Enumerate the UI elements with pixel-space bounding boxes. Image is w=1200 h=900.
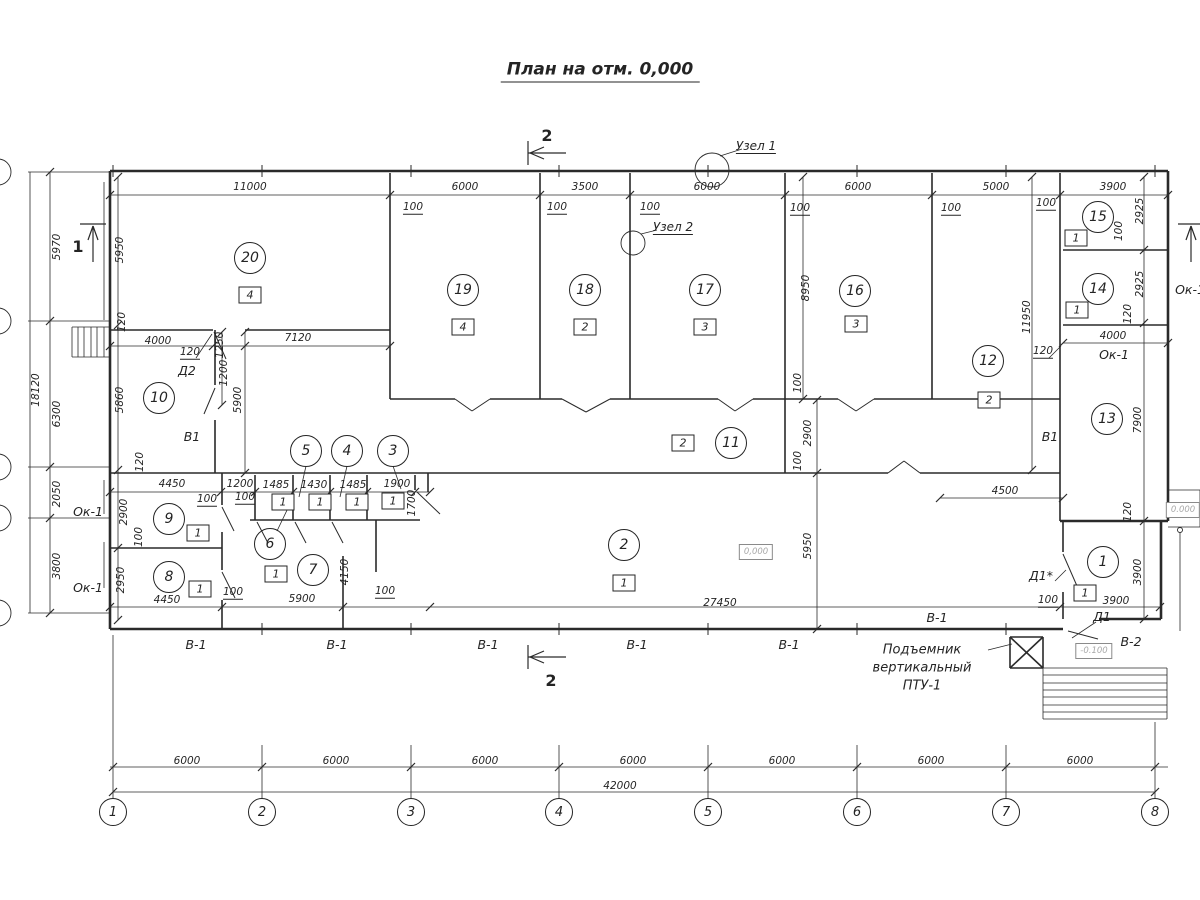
fixture-category-box: 1 bbox=[382, 493, 405, 510]
dim-label: 100 bbox=[235, 492, 255, 505]
opening-type-label: В-1 bbox=[185, 639, 206, 652]
fixture-category-box: 1 bbox=[272, 494, 295, 511]
opening-type-label: В-1 bbox=[778, 639, 799, 652]
dim-label: 100 bbox=[1038, 595, 1058, 608]
grid-spacing-dim: 6000 bbox=[620, 756, 647, 767]
elevation-mark: -0.100 bbox=[1075, 643, 1112, 659]
room-category-box: 1 bbox=[1065, 230, 1088, 247]
dim-label: 6000 bbox=[845, 182, 872, 193]
dim-label: 2900 bbox=[803, 420, 814, 447]
detail-node-label: Узел 2 bbox=[653, 221, 693, 235]
dim-label: 5000 bbox=[983, 182, 1010, 193]
grid-bubble-5: 5 bbox=[694, 798, 722, 826]
opening-type-label: В-1 bbox=[626, 639, 647, 652]
room-number-12: 12 bbox=[972, 345, 1004, 377]
opening-type-label: Д1 bbox=[1093, 611, 1111, 624]
room-category-box: 1 bbox=[187, 525, 210, 542]
equipment-note-line: ПТУ-1 bbox=[903, 680, 942, 693]
room-number-18: 18 bbox=[569, 274, 601, 306]
dim-label: 120 bbox=[1123, 304, 1134, 324]
room-number-7: 7 bbox=[297, 554, 329, 586]
dim-label: 2900 bbox=[119, 499, 130, 526]
dimension-lines bbox=[28, 172, 1200, 799]
dim-label: 1900 bbox=[384, 479, 411, 490]
detail-node-label: Узел 1 bbox=[736, 140, 776, 154]
opening-type-label: В-1 bbox=[926, 612, 947, 625]
dim-label: 100 bbox=[790, 203, 810, 216]
grid-total-dim: 42000 bbox=[603, 781, 636, 792]
dim-label: 5900 bbox=[289, 594, 316, 605]
door-symbols bbox=[204, 332, 1098, 639]
dim-label: 6300 bbox=[52, 401, 63, 428]
dim-label: 2925 bbox=[1135, 271, 1146, 298]
room-number-16: 16 bbox=[839, 275, 871, 307]
room-category-box: 4 bbox=[239, 287, 262, 304]
grid-spacing-dim: 6000 bbox=[323, 756, 350, 767]
dim-label: 120 bbox=[117, 312, 128, 332]
dim-label: 1250 bbox=[215, 332, 226, 359]
dim-label: 100 bbox=[197, 494, 217, 507]
dim-label: 120 bbox=[1033, 346, 1053, 359]
room-category-box: 1 bbox=[1066, 302, 1089, 319]
dim-label: 4000 bbox=[145, 336, 172, 347]
dim-label: 27450 bbox=[703, 598, 736, 609]
room-number-14: 14 bbox=[1082, 273, 1114, 305]
dim-label: 2925 bbox=[1135, 198, 1146, 225]
equipment-note-line: Подъемник bbox=[883, 644, 962, 657]
grid-spacing-dim: 6000 bbox=[769, 756, 796, 767]
opening-type-label: В-2 bbox=[1120, 636, 1141, 649]
dim-label: 18120 bbox=[31, 373, 42, 406]
dim-label: 4000 bbox=[1100, 331, 1127, 342]
dim-label: 6000 bbox=[694, 182, 721, 193]
elevation-mark: 0.000 bbox=[1166, 502, 1200, 518]
dim-label: 120 bbox=[135, 452, 146, 472]
room-category-box: 2 bbox=[978, 392, 1001, 409]
dim-label: 3900 bbox=[1133, 559, 1144, 586]
dim-label: 11000 bbox=[233, 182, 266, 193]
opening-type-label: Ок-1 bbox=[1099, 349, 1129, 362]
dim-label: 2050 bbox=[52, 481, 63, 508]
dim-label: 100 bbox=[640, 202, 660, 215]
opening-type-label: Ок-1 bbox=[73, 506, 103, 519]
room-category-box: 3 bbox=[694, 319, 717, 336]
dim-label: 100 bbox=[1114, 221, 1125, 241]
dim-label: 5950 bbox=[803, 533, 814, 560]
room-category-box: 1 bbox=[265, 566, 288, 583]
dim-label: 2950 bbox=[116, 567, 127, 594]
grid-bubble-1: 1 bbox=[99, 798, 127, 826]
grid-bubble-7: 7 bbox=[992, 798, 1020, 826]
dim-label: 3800 bbox=[52, 553, 63, 580]
room-number-15: 15 bbox=[1082, 201, 1114, 233]
room-number-19: 19 bbox=[447, 274, 479, 306]
elevation-mark: 0,000 bbox=[739, 544, 773, 560]
dim-label: 7120 bbox=[285, 333, 312, 344]
room-category-box: 1 bbox=[613, 575, 636, 592]
dim-label: 1485 bbox=[340, 480, 367, 491]
fixture-category-box: 1 bbox=[309, 494, 332, 511]
opening-type-label: В-1 bbox=[326, 639, 347, 652]
dim-label: 7900 bbox=[1133, 407, 1144, 434]
opening-type-label: Ок-1 bbox=[73, 582, 103, 595]
dim-label: 100 bbox=[403, 202, 423, 215]
room-category-box: 4 bbox=[452, 319, 475, 336]
grid-spacing-dim: 6000 bbox=[1067, 756, 1094, 767]
grid-bubble-3: 3 bbox=[397, 798, 425, 826]
interior-walls bbox=[110, 173, 1168, 668]
opening-type-label: В1 bbox=[184, 431, 201, 444]
room-number-13: 13 bbox=[1091, 403, 1123, 435]
room-number-11: 11 bbox=[715, 427, 747, 459]
fixture-category-box: 1 bbox=[346, 494, 369, 511]
room-number-8: 8 bbox=[153, 561, 185, 593]
dim-label: 3900 bbox=[1100, 182, 1127, 193]
opening-type-label: В1 bbox=[1042, 431, 1059, 444]
dim-label: 11950 bbox=[1022, 300, 1033, 333]
room-number-2: 2 bbox=[608, 529, 640, 561]
dim-label: 1700 bbox=[407, 490, 418, 517]
dim-label: 100 bbox=[547, 202, 567, 215]
section-mark-label: 1 bbox=[72, 239, 83, 255]
dim-label: 100 bbox=[375, 586, 395, 599]
dim-label: 100 bbox=[941, 203, 961, 216]
room-category-box: 1 bbox=[189, 581, 212, 598]
grid-spacing-dim: 6000 bbox=[918, 756, 945, 767]
room-number-5: 5 bbox=[290, 435, 322, 467]
dim-label: 1200 bbox=[219, 360, 230, 387]
dim-label: 100 bbox=[793, 451, 804, 471]
dim-label: 1485 bbox=[263, 480, 290, 491]
room-number-6: 6 bbox=[254, 528, 286, 560]
room-category-box: 2 bbox=[574, 319, 597, 336]
dim-label: 8950 bbox=[801, 275, 812, 302]
dimension-tick-marks bbox=[46, 168, 1172, 796]
dim-label: 5950 bbox=[115, 237, 126, 264]
dim-label: 6000 bbox=[452, 182, 479, 193]
dim-label: 100 bbox=[793, 373, 804, 393]
dim-label: 5900 bbox=[233, 387, 244, 414]
room-number-20: 20 bbox=[234, 242, 266, 274]
grid-bubble-6: 6 bbox=[843, 798, 871, 826]
dim-label: 5860 bbox=[115, 387, 126, 414]
drawing-title: План на отм. 0,000 bbox=[501, 62, 700, 83]
room-number-4: 4 bbox=[331, 435, 363, 467]
equipment-note-line: вертикальный bbox=[873, 662, 972, 675]
floor-plan-sheet: План на отм. 0,000 110006000350060006000… bbox=[0, 0, 1200, 900]
grid-spacing-dim: 6000 bbox=[174, 756, 201, 767]
dim-label: 120 bbox=[180, 347, 200, 360]
opening-type-label: Д1* bbox=[1029, 570, 1053, 583]
dim-label: 4450 bbox=[159, 479, 186, 490]
dim-label: 100 bbox=[1036, 198, 1056, 211]
opening-type-label: В-1 bbox=[477, 639, 498, 652]
room-category-box: 3 bbox=[845, 316, 868, 333]
dim-label: 4150 bbox=[340, 559, 351, 586]
dim-label: 1430 bbox=[301, 480, 328, 491]
room-number-9: 9 bbox=[153, 503, 185, 535]
dim-label: 4500 bbox=[992, 486, 1019, 497]
opening-type-label: Д2 bbox=[178, 365, 196, 378]
dim-label: 100 bbox=[134, 527, 145, 547]
section-mark-label: 2 bbox=[541, 128, 552, 144]
dim-label: 3900 bbox=[1103, 596, 1130, 607]
grid-bubble-4: 4 bbox=[545, 798, 573, 826]
dim-label: 3500 bbox=[572, 182, 599, 193]
dim-label: 100 bbox=[223, 587, 243, 600]
room-number-1: 1 bbox=[1087, 546, 1119, 578]
room-number-17: 17 bbox=[689, 274, 721, 306]
dim-label: 4450 bbox=[154, 595, 181, 606]
dim-label: 1200 bbox=[227, 479, 254, 490]
grid-bubble-8: 8 bbox=[1141, 798, 1169, 826]
outer-walls bbox=[110, 171, 1168, 629]
opening-type-label: Ок-1 bbox=[1175, 284, 1200, 297]
detail-node-circles bbox=[0, 153, 1183, 626]
room-number-3: 3 bbox=[377, 435, 409, 467]
room-number-10: 10 bbox=[143, 382, 175, 414]
dim-label: 120 bbox=[1123, 502, 1134, 522]
room-category-box: 1 bbox=[1074, 585, 1097, 602]
dim-label: 5970 bbox=[52, 234, 63, 261]
grid-bubble-2: 2 bbox=[248, 798, 276, 826]
room-category-box: 2 bbox=[672, 435, 695, 452]
grid-spacing-dim: 6000 bbox=[472, 756, 499, 767]
section-mark-label: 2 bbox=[545, 673, 556, 689]
